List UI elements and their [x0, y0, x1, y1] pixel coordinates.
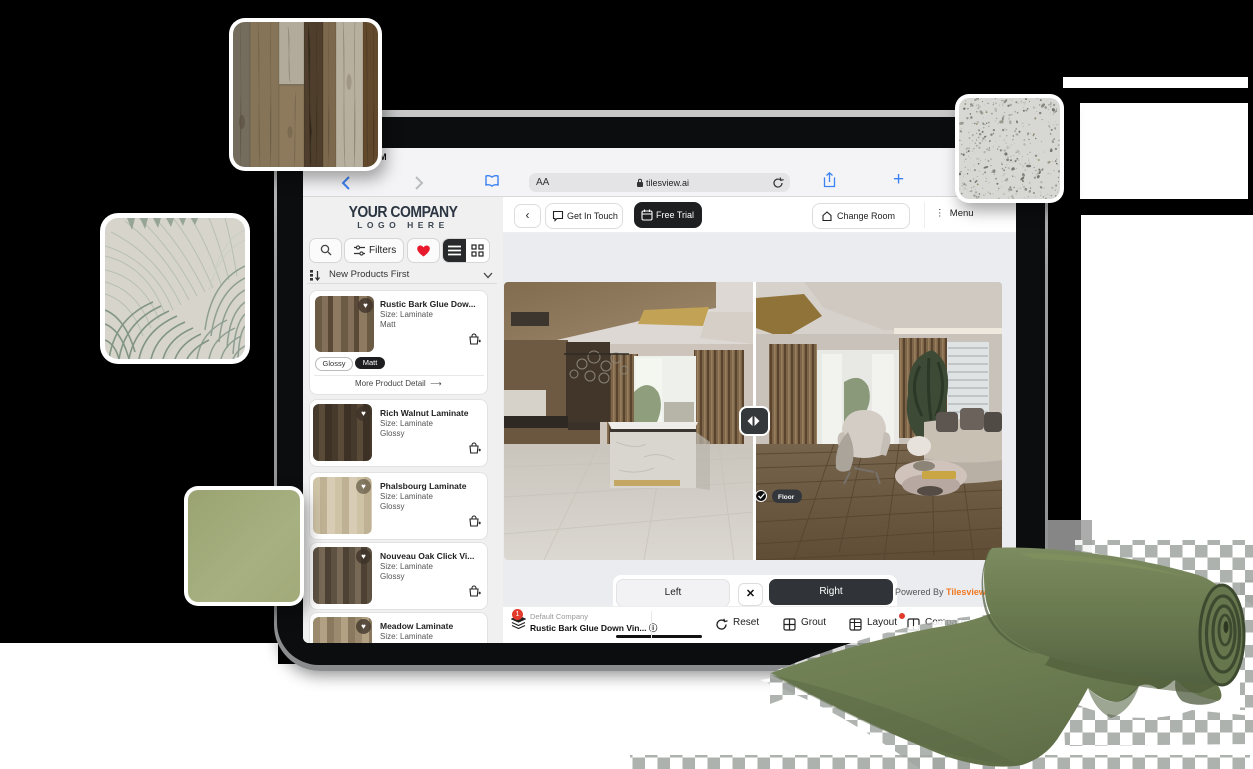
- svg-text:Floor: Floor: [778, 494, 795, 501]
